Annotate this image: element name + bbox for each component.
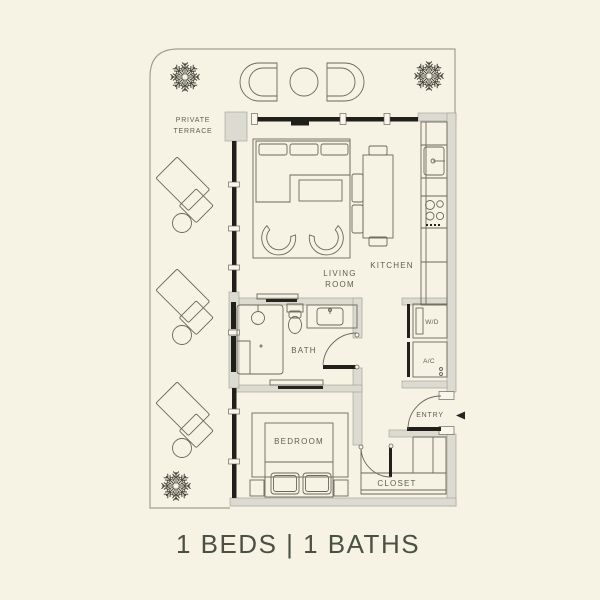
terrace-lounger (154, 269, 220, 345)
label-living-room: ROOM (325, 280, 355, 289)
floor-plan: PRIVATE TERRACE LIVING ROOM KITCHEN BATH… (0, 0, 600, 600)
toilet (287, 304, 303, 334)
dining-table-set (352, 146, 393, 246)
outdoor-seating-set (240, 63, 364, 101)
label-entry: ENTRY (416, 412, 444, 419)
floor-plan-canvas: PRIVATE TERRACE LIVING ROOM KITCHEN BATH… (0, 0, 600, 600)
pillow (271, 473, 299, 494)
label-living-room: LIVING (323, 269, 356, 278)
kitchen-counter (421, 122, 447, 305)
cooktop (426, 201, 444, 227)
living-rug (253, 139, 350, 258)
label-kitchen: KITCHEN (370, 261, 414, 270)
label-closet: CLOSET (377, 479, 416, 488)
label-washer-dryer: W/D (425, 319, 439, 326)
terrace-lounger (154, 382, 220, 458)
nightstand (250, 480, 264, 496)
label-bedroom: BEDROOM (274, 437, 324, 446)
pillow (303, 473, 331, 494)
label-bath: BATH (291, 346, 317, 355)
entry-arrow-icon (456, 412, 465, 420)
plant-icon (415, 62, 444, 91)
bath-door (323, 333, 359, 369)
lounge-chair (257, 225, 297, 259)
label-ac: A/C (423, 358, 435, 365)
plant-icon (171, 63, 200, 92)
vanity-sink (307, 305, 357, 328)
shower (237, 305, 283, 374)
coffee-table (299, 180, 342, 201)
footer-summary: 1 BEDS | 1 BATHS (176, 529, 420, 559)
kitchen-sink (424, 147, 445, 175)
label-private-terrace: TERRACE (173, 128, 212, 135)
nightstand (334, 480, 348, 496)
sofa (256, 141, 350, 202)
plant-icon (162, 472, 191, 501)
lounge-chair (308, 225, 348, 259)
bed (265, 423, 333, 497)
label-private-terrace: PRIVATE (176, 117, 211, 124)
outdoor-table (290, 68, 318, 96)
terrace-lounger (154, 157, 220, 233)
closet-door (359, 444, 393, 477)
